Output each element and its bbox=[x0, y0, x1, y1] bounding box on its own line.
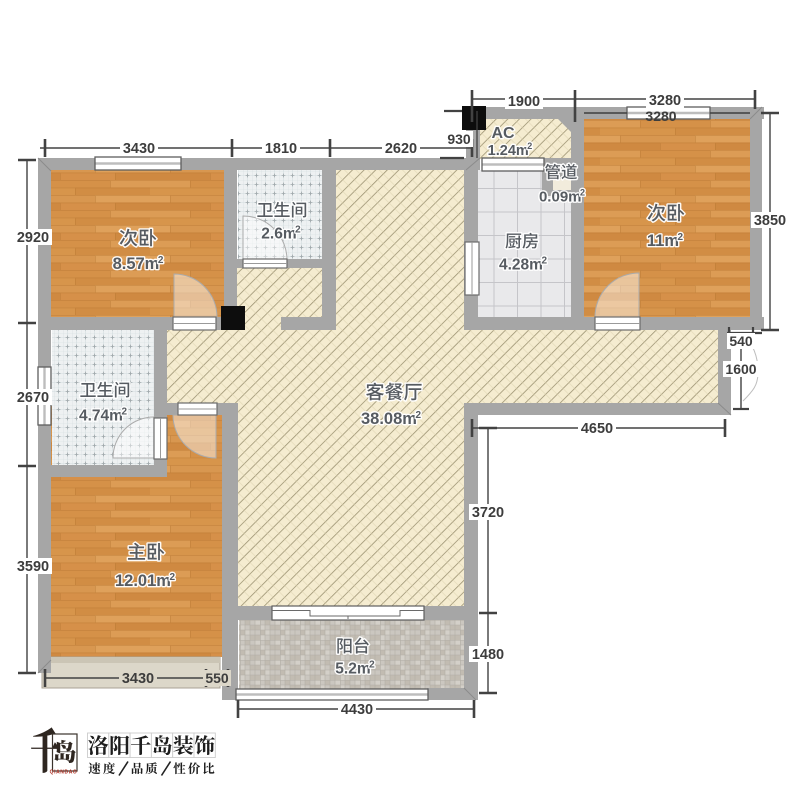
svg-text:4430: 4430 bbox=[341, 702, 373, 718]
svg-text:3430: 3430 bbox=[122, 671, 154, 687]
svg-text:1480: 1480 bbox=[472, 647, 504, 663]
svg-text:38.08m2: 38.08m2 bbox=[361, 410, 421, 428]
svg-text:3280: 3280 bbox=[645, 108, 676, 124]
svg-text:2920: 2920 bbox=[17, 230, 49, 246]
svg-text:1600: 1600 bbox=[725, 361, 756, 377]
svg-text:930: 930 bbox=[447, 131, 471, 147]
svg-text:4.28m2: 4.28m2 bbox=[499, 256, 547, 274]
svg-text:1900: 1900 bbox=[508, 94, 540, 110]
svg-text:2670: 2670 bbox=[17, 390, 49, 406]
svg-text:4650: 4650 bbox=[581, 421, 613, 437]
svg-text:2.6m2: 2.6m2 bbox=[261, 225, 301, 243]
svg-text:3720: 3720 bbox=[472, 505, 504, 521]
svg-text:1810: 1810 bbox=[265, 141, 297, 157]
svg-text:5.2m2: 5.2m2 bbox=[335, 660, 375, 678]
svg-text:3430: 3430 bbox=[123, 141, 155, 157]
svg-text:8.57m2: 8.57m2 bbox=[113, 255, 164, 273]
svg-text:0.09m2: 0.09m2 bbox=[539, 187, 585, 205]
svg-text:3850: 3850 bbox=[754, 213, 786, 229]
svg-text:3590: 3590 bbox=[17, 559, 49, 575]
svg-text:11m2: 11m2 bbox=[647, 232, 684, 250]
svg-text:3280: 3280 bbox=[649, 93, 681, 109]
svg-text:12.01m2: 12.01m2 bbox=[115, 572, 175, 590]
svg-text:540: 540 bbox=[729, 333, 753, 349]
svg-text:2620: 2620 bbox=[385, 141, 417, 157]
svg-text:550: 550 bbox=[205, 670, 229, 686]
svg-text:QIANDAO: QIANDAO bbox=[50, 770, 78, 776]
svg-text:4.74m2: 4.74m2 bbox=[79, 407, 127, 425]
svg-text:1.24m2: 1.24m2 bbox=[488, 141, 533, 159]
svg-text:AC: AC bbox=[491, 125, 515, 142]
